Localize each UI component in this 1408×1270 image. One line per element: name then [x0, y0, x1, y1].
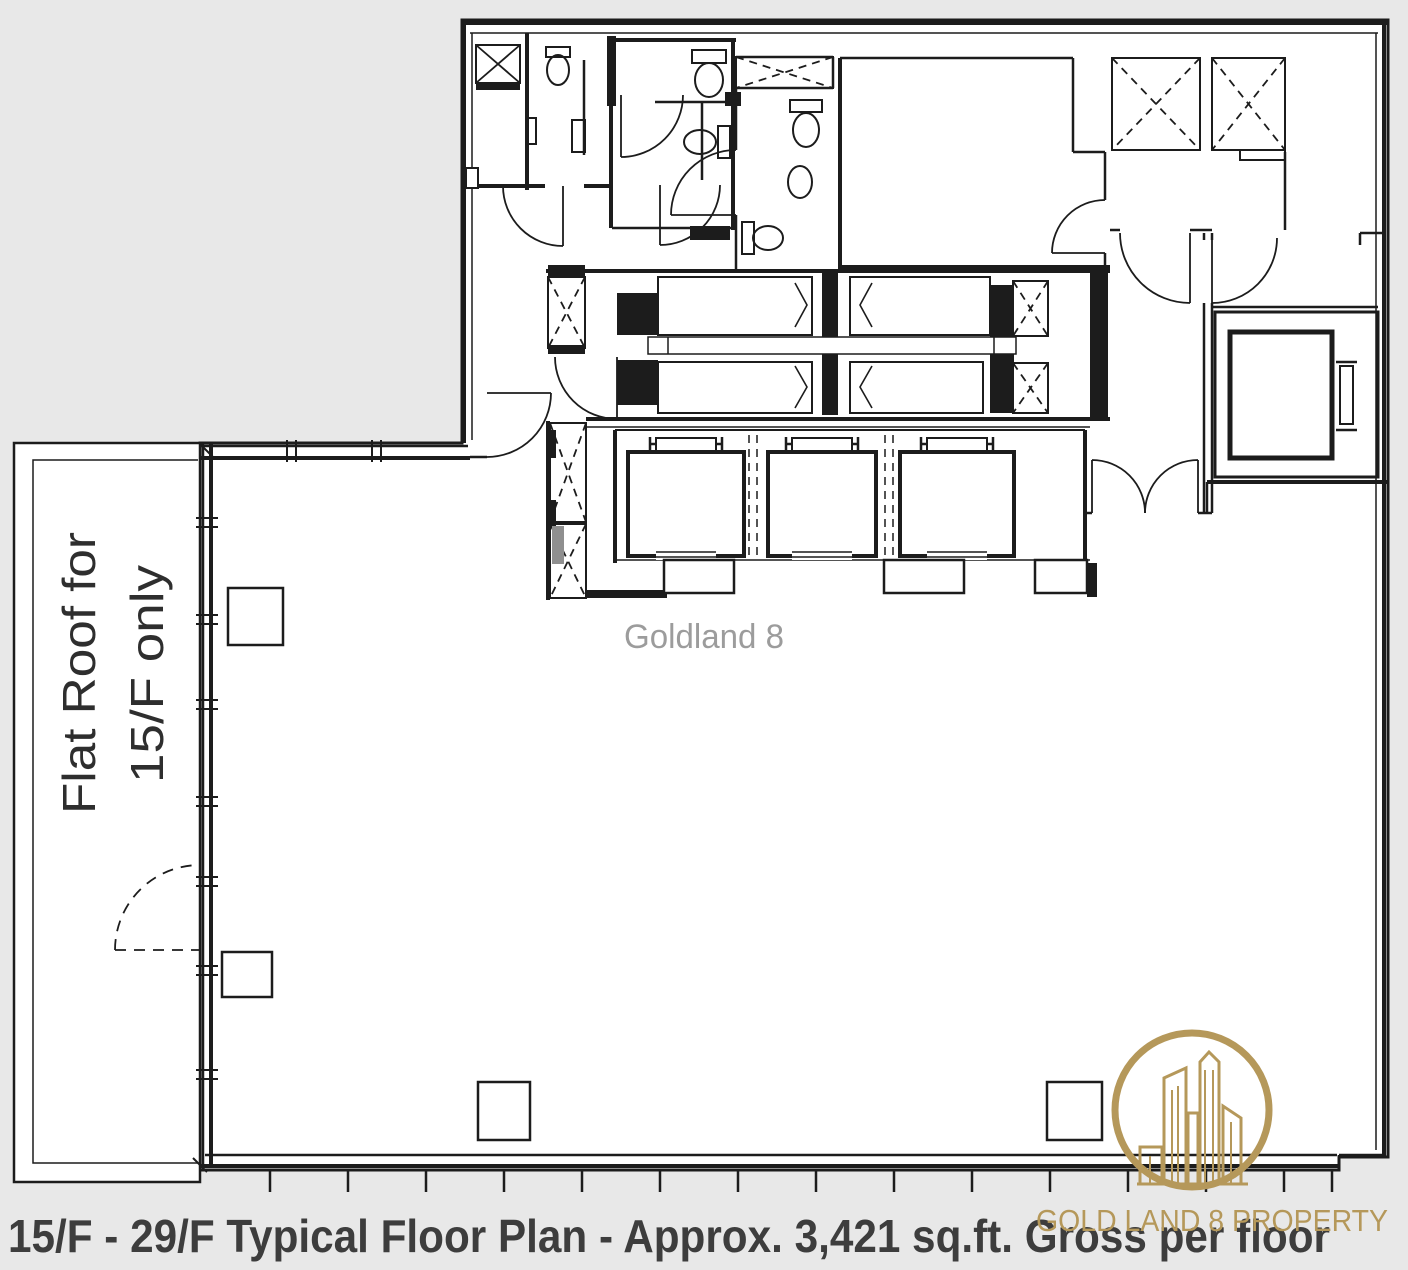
floor-plan-page: Goldland 8 Flat Roof for 15/F only 15/F …: [0, 0, 1408, 1270]
floor-plan-drawing: Goldland 8 Flat Roof for 15/F only 15/F …: [0, 0, 1408, 1270]
elevator-car: [768, 452, 876, 556]
elevator-counterweights: [650, 437, 993, 452]
service-elevator-car: [1230, 332, 1332, 458]
building-footprint: [14, 20, 1388, 1182]
flat-roof-label-line2: 15/F only: [121, 565, 173, 783]
stair-landing: [648, 337, 1016, 354]
elevator-car: [900, 452, 1014, 556]
logo-wordmark: GOLD LAND 8 PROPERTY: [1036, 1203, 1388, 1238]
elevator-car: [628, 452, 744, 556]
flat-roof-area: [14, 443, 200, 1182]
flat-roof-label-line1: Flat Roof for: [53, 532, 105, 814]
shaft-hatch: [552, 526, 564, 564]
watermark: Goldland 8: [624, 618, 784, 656]
